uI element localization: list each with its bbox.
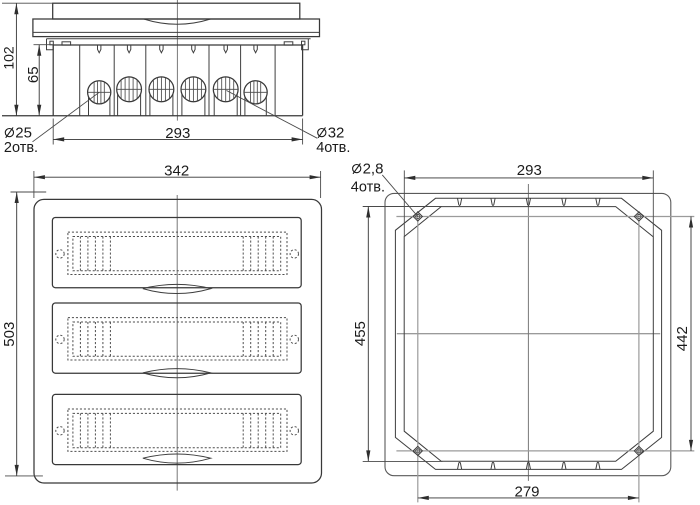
svg-text:342: 342 bbox=[164, 162, 189, 179]
svg-text:442: 442 bbox=[674, 326, 691, 351]
svg-text:65: 65 bbox=[25, 66, 42, 83]
svg-text:279: 279 bbox=[514, 483, 539, 500]
svg-text:102: 102 bbox=[0, 46, 16, 70]
svg-text:25: 25 bbox=[15, 125, 32, 142]
svg-text:4отв.: 4отв. bbox=[351, 179, 385, 195]
svg-text:503: 503 bbox=[1, 322, 18, 347]
svg-text:2отв.: 2отв. bbox=[4, 140, 38, 156]
svg-text:4отв.: 4отв. bbox=[316, 140, 350, 156]
svg-text:32: 32 bbox=[328, 125, 345, 142]
svg-text:455: 455 bbox=[352, 321, 369, 346]
svg-text:2,8: 2,8 bbox=[363, 160, 384, 177]
svg-text:293: 293 bbox=[517, 162, 542, 179]
svg-text:293: 293 bbox=[165, 125, 190, 142]
